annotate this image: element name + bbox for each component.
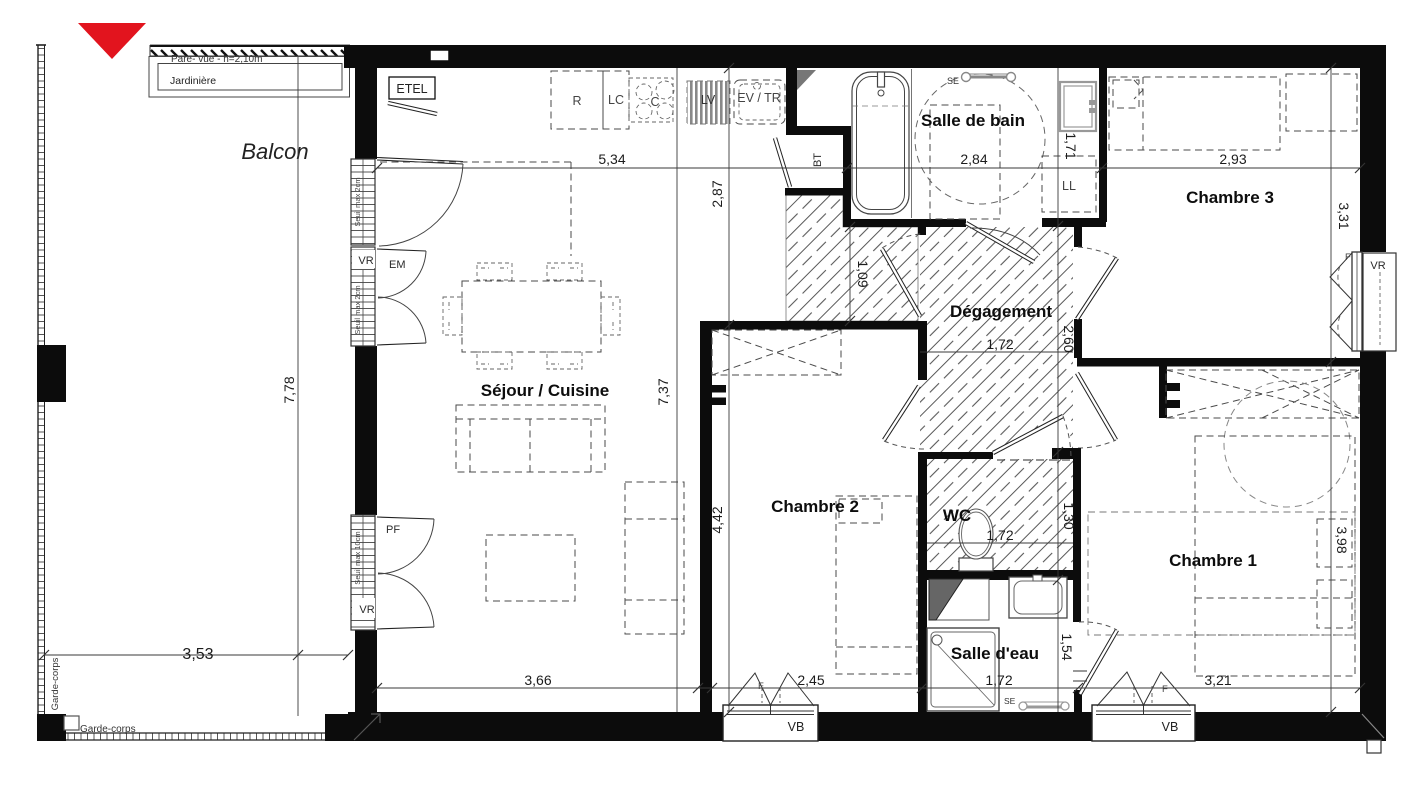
svg-text:VR: VR <box>359 604 374 616</box>
svg-text:VR: VR <box>1370 260 1385 272</box>
svg-text:1,72: 1,72 <box>986 336 1013 352</box>
svg-text:3,53: 3,53 <box>182 646 213 663</box>
svg-text:5,34: 5,34 <box>598 151 625 167</box>
svg-text:WC: WC <box>943 506 971 525</box>
svg-text:2,87: 2,87 <box>709 180 725 207</box>
svg-text:LL: LL <box>1062 179 1076 193</box>
svg-text:Seuil max 10cm: Seuil max 10cm <box>353 531 362 584</box>
svg-text:4,42: 4,42 <box>709 506 725 533</box>
svg-text:VB: VB <box>788 720 805 734</box>
svg-text:3,21: 3,21 <box>1204 672 1231 688</box>
svg-text:1,54: 1,54 <box>1059 633 1075 660</box>
svg-text:F: F <box>1162 684 1168 695</box>
svg-text:1,72: 1,72 <box>985 672 1012 688</box>
svg-text:Garde-corps: Garde-corps <box>50 657 61 710</box>
svg-text:BT: BT <box>812 153 824 167</box>
svg-text:VB: VB <box>1162 720 1179 734</box>
svg-text:ETEL: ETEL <box>396 82 427 96</box>
svg-text:Salle de bain: Salle de bain <box>921 111 1025 130</box>
svg-text:Balcon: Balcon <box>241 139 308 164</box>
svg-text:2,84: 2,84 <box>960 151 987 167</box>
svg-text:EV / TR: EV / TR <box>737 91 781 105</box>
svg-text:Garde-corps: Garde-corps <box>80 724 136 735</box>
svg-text:F: F <box>758 681 764 692</box>
svg-text:1,30: 1,30 <box>1061 502 1077 529</box>
svg-text:VR: VR <box>358 255 373 267</box>
svg-text:PF: PF <box>386 524 400 536</box>
svg-text:Seuil max 2cm: Seuil max 2cm <box>353 285 362 334</box>
svg-text:C: C <box>650 95 659 109</box>
svg-text:Seuil max 2cm: Seuil max 2cm <box>353 177 362 226</box>
svg-text:1,09: 1,09 <box>855 260 871 287</box>
svg-text:Jardinière: Jardinière <box>170 75 216 87</box>
svg-text:1,72: 1,72 <box>986 527 1013 543</box>
svg-text:Pare- vue - h=2,10m: Pare- vue - h=2,10m <box>171 54 262 65</box>
svg-text:2,60: 2,60 <box>1061 325 1077 352</box>
svg-text:EM: EM <box>389 259 406 271</box>
svg-text:7,37: 7,37 <box>655 378 671 405</box>
svg-text:Chambre 3: Chambre 3 <box>1186 188 1274 207</box>
svg-text:R: R <box>572 94 581 108</box>
svg-text:3,31: 3,31 <box>1336 202 1352 229</box>
svg-text:2,45: 2,45 <box>797 672 824 688</box>
svg-text:LC: LC <box>608 93 624 107</box>
svg-text:Salle d'eau: Salle d'eau <box>951 644 1039 663</box>
svg-text:Séjour / Cuisine: Séjour / Cuisine <box>481 381 609 400</box>
svg-text:SE: SE <box>947 76 959 86</box>
svg-text:SE: SE <box>1004 696 1016 706</box>
svg-text:3,98: 3,98 <box>1334 526 1350 553</box>
svg-text:Chambre 2: Chambre 2 <box>771 497 859 516</box>
svg-text:LV: LV <box>701 93 716 107</box>
svg-text:1,71: 1,71 <box>1063 132 1079 159</box>
svg-text:2,93: 2,93 <box>1219 151 1246 167</box>
svg-text:3,66: 3,66 <box>524 672 551 688</box>
svg-text:Dégagement: Dégagement <box>950 302 1052 321</box>
svg-text:7,78: 7,78 <box>281 376 297 403</box>
svg-text:Chambre 1: Chambre 1 <box>1169 551 1257 570</box>
